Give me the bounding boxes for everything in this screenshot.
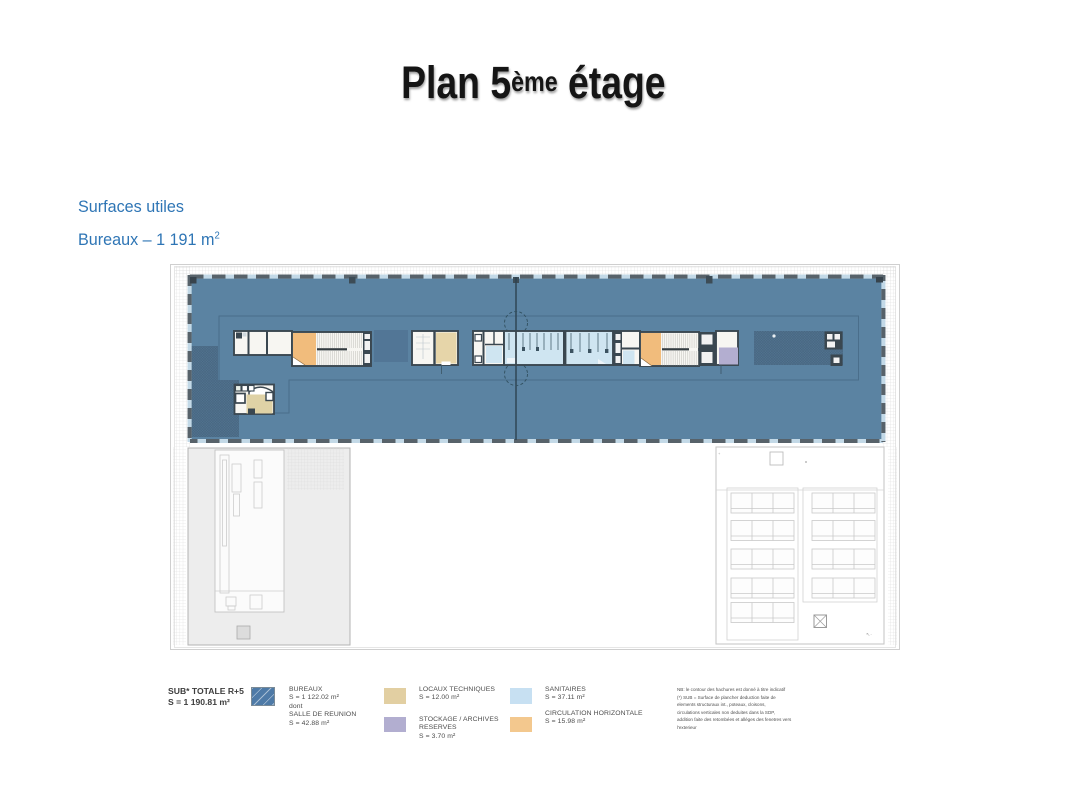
svg-text:↖·: ↖·	[866, 632, 872, 638]
